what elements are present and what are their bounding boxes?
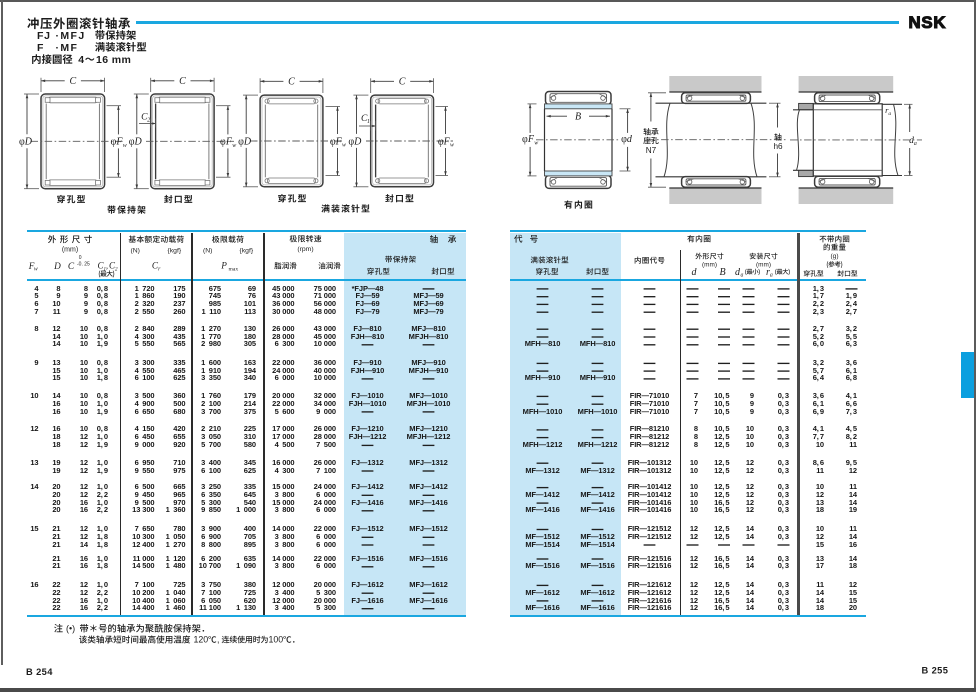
svg-text:C: C <box>68 262 75 272</box>
svg-text:100: 100 <box>269 635 284 645</box>
svg-text:(mm): (mm) <box>702 262 717 269</box>
svg-text:φF: φF <box>522 134 535 145</box>
svg-text:d: d <box>692 267 698 278</box>
svg-text:N7: N7 <box>646 146 657 155</box>
svg-text:{kgf}: {kgf} <box>240 247 254 254</box>
svg-text:a: a <box>770 273 773 279</box>
svg-text:16 mm: 16 mm <box>96 54 131 66</box>
svg-text:2: 2 <box>115 266 118 272</box>
svg-text:r: r <box>158 266 161 272</box>
svg-text:a: a <box>914 141 917 147</box>
svg-text:C: C <box>288 77 295 88</box>
svg-text:a: a <box>888 111 891 117</box>
svg-text:w: w <box>534 140 538 146</box>
svg-text:w: w <box>232 143 236 149</box>
svg-text:(N): (N) <box>203 247 212 254</box>
svg-text:φd: φd <box>621 134 633 145</box>
svg-text:B 254: B 254 <box>26 667 53 677</box>
svg-text:1: 1 <box>367 119 370 125</box>
svg-text:B: B <box>719 267 725 278</box>
svg-text:{kgf}: {kgf} <box>168 247 182 254</box>
svg-text:max: max <box>229 266 239 272</box>
svg-text:B: B <box>575 111 581 122</box>
svg-text:B 255: B 255 <box>922 666 949 676</box>
svg-text:(rpm): (rpm) <box>297 246 313 253</box>
svg-text:0: 0 <box>79 255 82 261</box>
svg-text:·MFJ: ·MFJ <box>56 30 86 42</box>
svg-text:w: w <box>450 143 454 149</box>
svg-text:4: 4 <box>78 54 84 66</box>
svg-text:φD: φD <box>348 136 362 147</box>
svg-text:a: a <box>741 273 744 279</box>
svg-text:NSK: NSK <box>909 13 947 32</box>
svg-text:(mm): (mm) <box>62 247 78 254</box>
svg-text:φF: φF <box>330 136 343 147</box>
svg-text:2: 2 <box>147 118 150 124</box>
svg-text:C: C <box>179 76 186 87</box>
svg-text:·MF: ·MF <box>56 42 79 54</box>
svg-text:(N): (N) <box>131 247 140 254</box>
svg-text:φD: φD <box>238 136 252 147</box>
svg-text:FJ: FJ <box>37 30 51 42</box>
svg-text:F: F <box>37 42 44 54</box>
svg-text:(•): (•) <box>66 624 75 634</box>
svg-text:φD: φD <box>19 137 33 148</box>
svg-text:120: 120 <box>194 635 209 645</box>
svg-text:φF: φF <box>220 137 233 148</box>
svg-text:(g): (g) <box>830 253 838 260</box>
svg-text:w: w <box>342 143 346 149</box>
svg-text:C: C <box>69 76 76 87</box>
svg-text:w: w <box>123 143 127 149</box>
svg-text:,: , <box>217 635 219 645</box>
svg-text:φF: φF <box>438 136 451 147</box>
svg-text:P: P <box>220 261 227 271</box>
svg-text:,: , <box>106 262 108 271</box>
svg-text:D: D <box>53 261 61 271</box>
svg-text:φF: φF <box>111 137 124 148</box>
svg-text:C: C <box>399 77 406 88</box>
svg-text:w: w <box>34 267 38 273</box>
svg-text:φD: φD <box>129 137 143 148</box>
svg-text:-0. 25: -0. 25 <box>77 261 90 267</box>
svg-text:h6: h6 <box>773 142 783 151</box>
